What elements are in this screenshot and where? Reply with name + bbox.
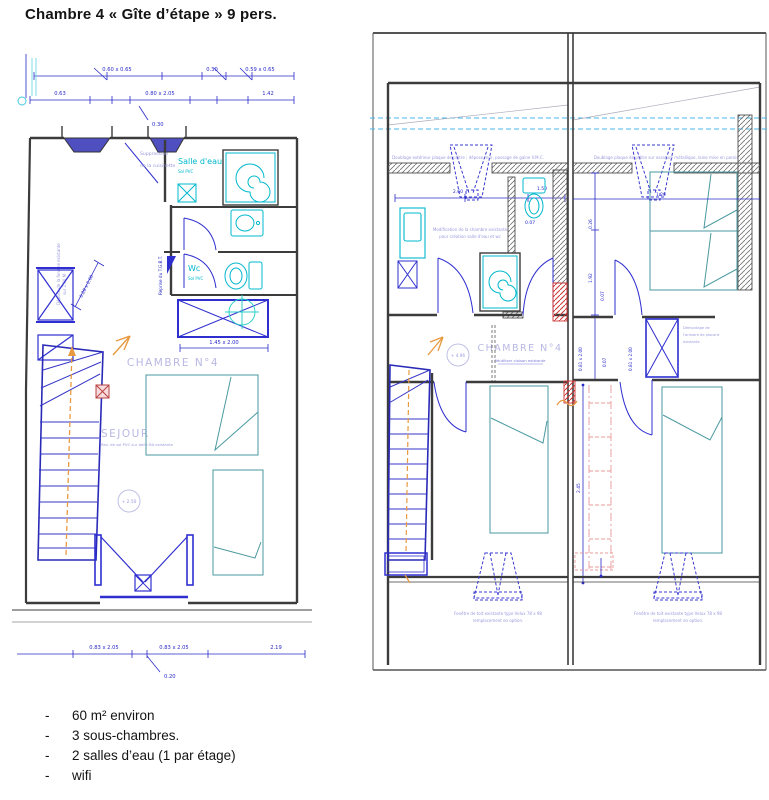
dim-label: 2.45: [576, 483, 582, 493]
dim-label: 0.60 x 0.65: [102, 67, 131, 73]
entry-door-leaf: [125, 143, 158, 183]
wc-room: Wc Sol PVC: [164, 252, 297, 295]
door-right-lower: [620, 380, 652, 435]
annotation-velux-right: Fenêtre de toit existante type Velux 78 …: [634, 611, 722, 623]
staircase: [38, 345, 103, 560]
dimensions-top: [26, 54, 294, 120]
vanity-sink: [400, 208, 425, 258]
exterior-walls: [388, 33, 760, 665]
dim-label: 0.26: [588, 219, 594, 229]
walls-bottom: [388, 577, 760, 582]
red-wall-new: [553, 283, 567, 321]
level-marker: + 2.50: [118, 490, 140, 512]
note-line: de la cuisinette: [140, 163, 175, 169]
dim-label: 0.07: [525, 220, 535, 226]
annotation-modification: Modification de la chambre existante pou…: [433, 227, 508, 239]
window-bottom-left: [385, 553, 427, 575]
level-marker: + 4.96: [447, 344, 469, 366]
level-value: + 4.96: [451, 353, 465, 358]
red-symbol: [96, 385, 109, 398]
dim-label: 0.63: [54, 91, 66, 97]
dim-label: 1.20: [656, 192, 666, 198]
room-sublabel: Réutiliser cloison existante: [495, 358, 547, 363]
note-line: pour création salle d'eau et wc: [439, 234, 501, 239]
note-line: Modification de la chambre existante: [433, 227, 508, 232]
page-title: Chambre 4 « Gîte d’étape » 9 pers.: [25, 6, 277, 23]
red-wall-new-2: [564, 381, 575, 403]
note-line: l'armoire de placard: [683, 333, 719, 337]
dim-label: 0.81 x 2.00: [628, 347, 633, 371]
room-label-wc: Wc: [188, 264, 200, 273]
note-doublage-left: Doublage extérieur plaque de plâtre ; dé…: [392, 155, 544, 160]
dim-label: 1.45 x 2.00: [209, 340, 238, 346]
roof-lines: [370, 87, 769, 129]
red-ladder-dashed: [589, 385, 611, 570]
bathroom-door-arc: [184, 218, 216, 250]
closet-crossed: [178, 295, 268, 337]
dim-label: 0.83 x 2.05: [159, 645, 188, 651]
note-line: Suppression: [140, 151, 168, 157]
dim-label: 0.59 x 0.65: [245, 67, 274, 73]
note-line: Démontage de: [683, 326, 710, 330]
tgbt-label: Reprise du T.G.B.T.: [158, 256, 163, 295]
dim-label: 2.60: [453, 189, 463, 195]
note-line: existante: [683, 340, 700, 344]
shower: [480, 253, 520, 311]
list-marker: -: [45, 768, 72, 783]
dim-label: 0.81 x 2.00: [578, 347, 583, 371]
pink-dashed-box: [575, 553, 613, 577]
tgbt-note: Reprise du T.G.B.T.: [158, 256, 176, 295]
dim-line-left-panel: [395, 194, 565, 202]
dim-label: 0.07: [602, 357, 607, 367]
window-dimension: 0.28 x 2.00: [71, 260, 104, 310]
bed-single-right: [662, 387, 722, 553]
room-label-chambre: CHAMBRE N°4: [127, 357, 219, 369]
room-sublabel: Sol PVC: [178, 169, 194, 174]
french-doors: [95, 535, 193, 597]
floor-plan-level-1: 0.60 x 0.65 0.30 0.59 x 0.65 0.63 0.80 x…: [12, 50, 314, 698]
dim-label: 0.30: [152, 122, 164, 128]
dim-label: 0.30: [206, 67, 218, 73]
list-item-text: 60 m² environ: [72, 708, 155, 723]
sink: [231, 210, 263, 236]
room-label-chambre: CHAMBRE N°4: [477, 343, 562, 354]
note-doublage-right: Doublage plaque de plâtre sur ossature m…: [594, 155, 739, 160]
dim-label: 1.50: [537, 186, 547, 192]
dimensions-bottom: 0.83 x 2.05 0.83 x 2.05 2.19 0.20: [17, 645, 305, 680]
dim-label: 0.20: [164, 674, 176, 680]
window-x-box: [398, 261, 417, 288]
bed-single: [213, 470, 263, 575]
axis-dashed: [492, 325, 495, 383]
list-marker: -: [45, 728, 72, 743]
floor-plan-level-2: Doublage extérieur plaque de plâtre ; dé…: [370, 25, 769, 683]
bathroom-doors: [438, 258, 553, 315]
list-marker: -: [45, 748, 72, 763]
dim-label: 1.92: [588, 273, 594, 283]
vent-box: [178, 184, 196, 202]
note-line: Fenêtre de toit existante type Velux 78 …: [454, 611, 542, 616]
orange-arrow: [113, 336, 130, 355]
list-marker: -: [45, 708, 72, 723]
dim-label: 2.19: [270, 645, 282, 651]
staircase: [388, 365, 430, 560]
dim-245: 2.45: [576, 384, 584, 585]
list-item: - 60 m² environ: [45, 708, 236, 723]
list-item: - 3 sous-chambres.: [45, 728, 236, 743]
list-item-text: wifi: [72, 768, 92, 783]
toilet: [225, 262, 262, 289]
room-label-sejour: SEJOUR: [101, 428, 150, 440]
survey-marker: [18, 58, 36, 105]
feature-list: - 60 m² environ - 3 sous-chambres. - 2 s…: [45, 708, 236, 788]
orange-arrow: [428, 337, 443, 355]
annotation-fenetre-1: Dépose de la fenêtre existante: [56, 243, 61, 305]
list-item: - wifi: [45, 768, 236, 783]
level-value: + 2.50: [122, 499, 137, 505]
list-item: - 2 salles d’eau (1 par étage): [45, 748, 236, 763]
room-sublabel: Sol PVC: [188, 276, 204, 281]
annotation-velux-left: Fenêtre de toit existante type Velux 78 …: [454, 611, 542, 623]
dim-label: 0.07: [600, 291, 606, 301]
bed-single-left: [490, 386, 548, 533]
door-right-upper: [615, 260, 642, 315]
hatched-wall-right: [738, 115, 752, 290]
annotation-placard: Démontage de l'armoire de placard exista…: [683, 326, 719, 344]
dim-label: 0.28 x 2.00: [78, 274, 95, 299]
note-line: Fenêtre de toit existante type Velux 78 …: [634, 611, 722, 616]
window-top-2: [150, 138, 184, 152]
room-sublabel: Rev. de sol PVC sur dalle BA existante: [101, 442, 174, 447]
door-stairhall: [434, 382, 466, 432]
dim-label: 0.80 x 2.05: [145, 91, 174, 97]
dim-label: 1.42: [262, 91, 274, 97]
list-item-text: 2 salles d’eau (1 par étage): [72, 748, 236, 763]
list-item-text: 3 sous-chambres.: [72, 728, 179, 743]
annotation-cuisinette: Suppression de la cuisinette: [140, 151, 175, 169]
window-top-1: [64, 138, 110, 152]
closet-dimension: 1.45 x 2.00: [180, 340, 268, 352]
note-line: remplacement en option.: [473, 618, 524, 623]
dim-label: 0.83 x 2.05: [89, 645, 118, 651]
beds-twin: [650, 172, 737, 290]
room-label-salle-eau: Salle d'eau: [178, 157, 222, 166]
note-line: remplacement en option.: [653, 618, 704, 623]
closet-crossed: [646, 319, 678, 377]
shower: [223, 150, 278, 205]
